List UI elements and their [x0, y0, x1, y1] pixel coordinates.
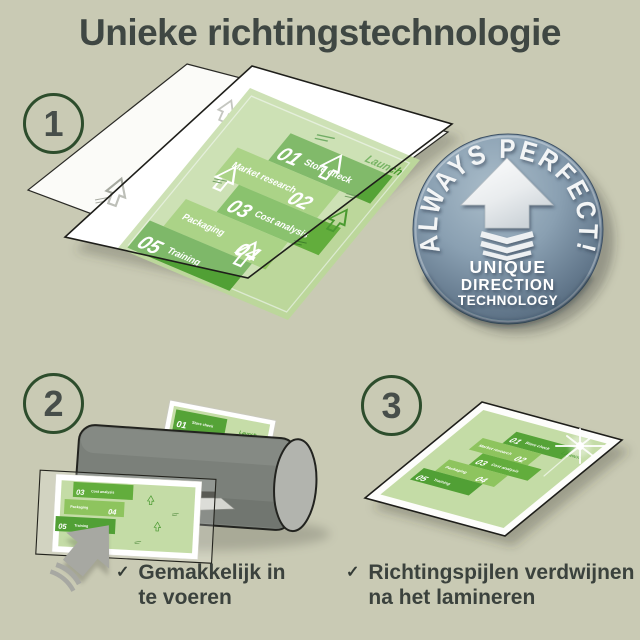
caption-line: Gemakkelijk in — [138, 561, 285, 586]
badge-line-direction: DIRECTION — [461, 277, 555, 294]
step-number-label: 2 — [43, 383, 63, 425]
badge-line-unique: UNIQUE — [469, 257, 546, 277]
item-label: Training — [74, 524, 88, 529]
caption-text: Richtingspijlen verdwijnen na het lamine… — [368, 561, 634, 611]
illustration-canvas: 01 Store check Market research 02 03 Cos… — [0, 0, 640, 640]
item-number: 05 — [58, 522, 68, 531]
item-number: 03 — [76, 488, 86, 497]
item-number: 04 — [108, 507, 118, 516]
step-number-label: 1 — [43, 103, 63, 145]
step1-illustration: 01 Store check Market research 02 03 Cos… — [28, 64, 462, 320]
caption-line: na het lamineren — [368, 586, 634, 611]
badge-line-technology: TECHNOLOGY — [458, 293, 558, 308]
always-perfect-badge: ALWAYS PERFECT! UNIQUE DIRECTION TECHNOL… — [413, 134, 614, 334]
document-coming-out: 03 Cost analysis Packaging 04 05 Trainin… — [36, 470, 216, 563]
step3-caption: ✓ Richtingspijlen verdwijnen na het lami… — [346, 561, 634, 611]
item-number: 01 — [176, 419, 188, 431]
caption-line: Richtingspijlen verdwijnen — [368, 561, 634, 586]
step-number-label: 3 — [381, 385, 401, 427]
caption-line: te voeren — [138, 586, 285, 611]
step-number-2: 2 — [23, 373, 84, 434]
checkmark-icon: ✓ — [346, 564, 359, 614]
step-number-1: 1 — [23, 93, 84, 154]
checkmark-icon: ✓ — [116, 564, 129, 614]
step2-caption: ✓ Gemakkelijk in te voeren — [116, 561, 286, 611]
caption-text: Gemakkelijk in te voeren — [138, 561, 285, 611]
step-number-3: 3 — [361, 375, 422, 436]
